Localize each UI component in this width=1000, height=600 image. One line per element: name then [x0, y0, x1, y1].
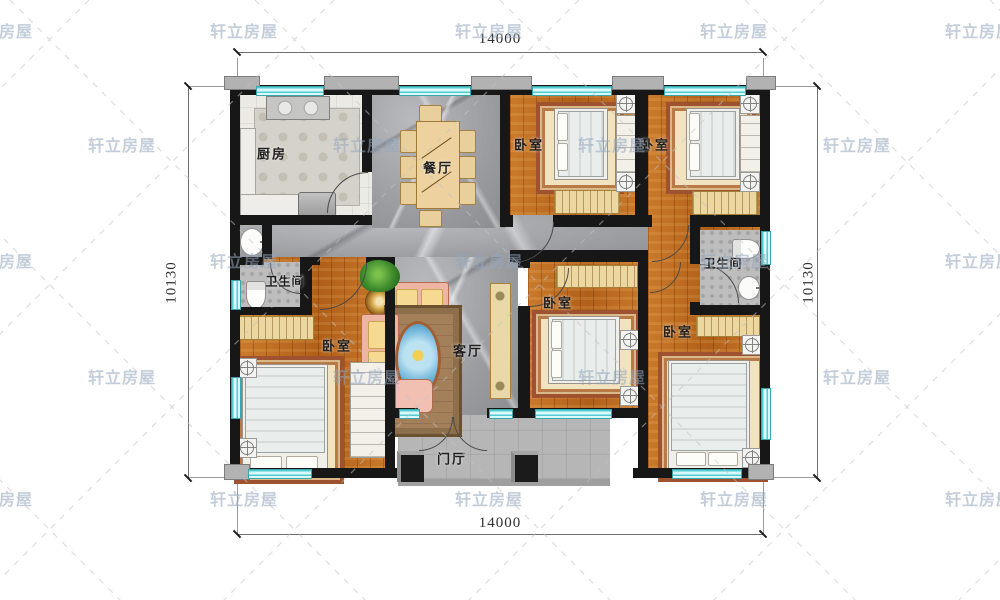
extension-line: [237, 480, 238, 534]
label-bedroom: 卧室: [543, 293, 573, 312]
pillow: [689, 143, 700, 171]
wall-segment: [553, 215, 652, 227]
label-living: 客厅: [453, 341, 483, 360]
watermark-text: 轩立房屋: [700, 486, 768, 510]
tall-wardrobe: [350, 362, 386, 458]
dimension-value-right: 10130: [801, 253, 818, 313]
dimension-value-bottom: 14000: [470, 515, 530, 532]
watermark-text: 轩立房屋: [823, 364, 891, 388]
watermark-text: 轩立房屋: [945, 248, 1000, 272]
ceiling-lamp-icon: [740, 172, 760, 192]
pillow: [557, 143, 568, 171]
wall-cap: [324, 76, 399, 90]
window: [672, 469, 742, 479]
watermark-text: 轩立房屋: [455, 486, 523, 510]
watermark-text: 轩立房屋: [210, 486, 278, 510]
label-bedroom: 卧室: [322, 336, 352, 355]
watermark-text: 轩立房屋: [0, 486, 33, 510]
watermark-text: 轩立房屋: [700, 18, 768, 42]
ceiling-lamp-icon: [740, 94, 760, 114]
extension-line: [770, 86, 817, 87]
dimension-line: [237, 52, 764, 53]
label-dining: 餐厅: [423, 158, 453, 177]
window: [532, 86, 612, 96]
bed-mattress: [245, 367, 325, 453]
wall-segment: [518, 306, 530, 415]
toilet: [246, 281, 266, 309]
wall-cap: [748, 464, 774, 480]
window: [761, 231, 771, 265]
dining-chair: [400, 182, 417, 205]
wall-segment: [312, 257, 320, 265]
dining-chair: [459, 156, 476, 179]
wall-cap: [746, 76, 776, 90]
watermark-text: 轩立房屋: [823, 132, 891, 156]
dining-chair: [419, 210, 442, 227]
pillow: [708, 452, 738, 466]
dimension-line: [188, 86, 189, 478]
dining-chair: [459, 182, 476, 205]
extension-line: [770, 477, 817, 478]
wall-segment: [690, 218, 700, 264]
window: [761, 388, 771, 440]
bedside-cabinet: [740, 115, 761, 173]
label-bedroom: 卧室: [663, 322, 693, 341]
wall-segment: [230, 307, 312, 315]
pillow: [676, 452, 706, 466]
wardrobe: [236, 316, 314, 340]
tv-cabinet: [490, 283, 511, 399]
dimension-line: [237, 534, 764, 535]
window: [664, 86, 746, 96]
watermark-text: 轩立房屋: [0, 248, 33, 272]
pillow: [551, 321, 562, 349]
dining-chair: [459, 130, 476, 153]
wall-cap: [224, 76, 260, 90]
wall-segment: [262, 225, 272, 259]
window: [248, 469, 312, 479]
wall-segment: [690, 215, 770, 227]
watermark-text: 轩立房屋: [88, 132, 156, 156]
wall-segment: [362, 95, 372, 172]
wall-segment: [230, 257, 264, 265]
dining-chair: [419, 105, 442, 122]
watermark-text: 轩立房屋: [210, 18, 278, 42]
label-kitchen: 厨房: [257, 144, 287, 163]
ceiling-lamp-icon: [616, 172, 636, 192]
wall-segment: [230, 215, 372, 225]
pillow: [551, 350, 562, 378]
ceiling-lamp-icon: [616, 94, 636, 114]
pillow: [557, 113, 568, 141]
floor-plan-canvas: 14000 14000 10130 10130: [0, 0, 1000, 600]
washbasin: [738, 276, 760, 300]
wall-segment: [690, 305, 770, 315]
window: [399, 86, 471, 96]
window: [231, 280, 241, 310]
dining-chair: [400, 130, 417, 153]
watermark-text: 轩立房屋: [945, 486, 1000, 510]
washbasin: [240, 228, 264, 256]
wall-segment: [500, 95, 510, 215]
wall-cap: [224, 464, 250, 480]
window: [399, 409, 420, 419]
window: [535, 409, 612, 419]
wall-segment: [638, 250, 648, 478]
wall-segment: [500, 215, 513, 227]
dimension-value-left: 10130: [164, 253, 181, 313]
watermark-text: 轩立房屋: [945, 18, 1000, 42]
wardrobe: [692, 191, 758, 215]
window: [489, 409, 513, 419]
porch-pillar: [397, 451, 424, 482]
extension-line: [763, 480, 764, 534]
kitchen-sink: [266, 96, 330, 120]
wall-cap: [471, 76, 532, 90]
bedside-cabinet: [616, 115, 637, 173]
bed-mattress: [671, 363, 747, 451]
label-bedroom: 卧室: [514, 135, 544, 154]
ceiling-lamp-icon: [742, 335, 762, 355]
dining-chair: [400, 156, 417, 179]
window: [231, 377, 241, 419]
watermark-text: 轩立房屋: [0, 18, 33, 42]
dimension-value-top: 14000: [470, 31, 530, 48]
wardrobe: [696, 316, 760, 337]
wall-cap: [612, 76, 664, 90]
label-bathroom: 卫生间: [703, 255, 742, 272]
label-entry: 门厅: [437, 449, 467, 468]
label-bedroom: 卧室: [640, 135, 670, 154]
porch-pillar: [511, 451, 538, 482]
ceiling-lamp-icon: [237, 438, 257, 458]
label-bathroom: 卫生间: [265, 273, 304, 290]
ceiling-lamp-icon: [237, 358, 257, 378]
ceiling-lamp-icon: [620, 330, 640, 350]
wall-segment: [635, 95, 648, 215]
watermark-text: 轩立房屋: [88, 364, 156, 388]
ceiling-lamp-icon: [620, 386, 640, 406]
wardrobe: [554, 190, 620, 214]
window: [256, 86, 324, 96]
pillow: [689, 113, 700, 141]
